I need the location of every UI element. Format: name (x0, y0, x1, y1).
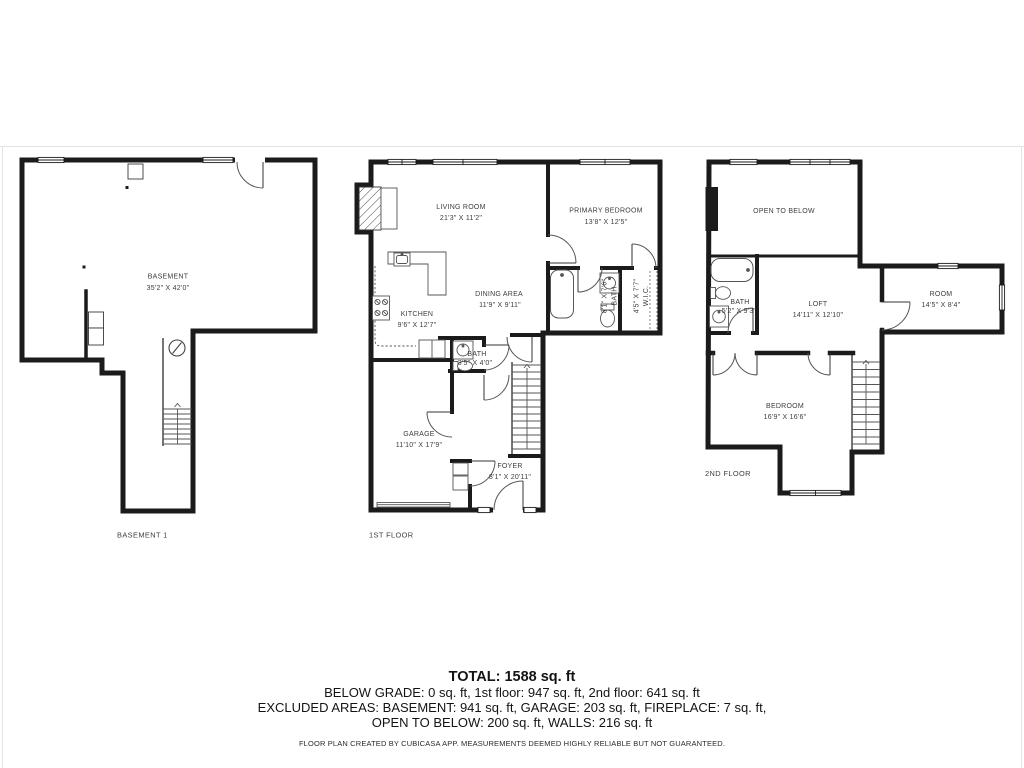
loft-bath-label: BATH (730, 299, 749, 306)
total-area: TOTAL: 1588 sq. ft (0, 669, 1024, 685)
first-floor-plan: LIVING ROOM 21'3" X 11'2" PRIMARY BEDROO… (357, 159, 660, 540)
garage-label: GARAGE (403, 431, 435, 438)
basement-room-label: BASEMENT (148, 274, 189, 281)
basement-room-dims: 35'2" X 42'0" (147, 285, 190, 292)
second-floor-label: 2ND FLOOR (705, 469, 751, 478)
basement-shelves (89, 312, 104, 345)
bedroom-label: BEDROOM (766, 403, 804, 410)
basement-plan: BASEMENT 35'2" X 42'0" BASEMENT 1 (22, 157, 315, 540)
kitchen-sink-icon (394, 253, 410, 266)
foyer-label: FOYER (497, 463, 522, 470)
loft-dims: 14'11" X 12'10" (793, 312, 844, 319)
small-bath-label: BATH (467, 351, 486, 358)
primary-bath-dims: 8'1" X 7'6" (602, 278, 609, 313)
primary-bedroom-dims: 13'8" X 12'5" (585, 219, 628, 226)
second-floor-outline (708, 162, 1002, 493)
excluded-areas-line2: OPEN TO BELOW: 200 sq. ft, WALLS: 216 sq… (0, 715, 1024, 730)
excluded-areas-line: EXCLUDED AREAS: BASEMENT: 941 sq. ft, GA… (0, 700, 1024, 715)
wic-dims: 4'5" X 7'7" (634, 278, 641, 313)
dining-area-label: DINING AREA (475, 291, 523, 298)
floor-plan-sheet: BASEMENT 35'2" X 42'0" BASEMENT 1 (0, 0, 1024, 768)
garage-dims: 11'10" X 17'9" (396, 442, 443, 449)
fireplace-icon (359, 187, 397, 230)
basement-floor-label: BASEMENT 1 (117, 531, 168, 540)
loft-toilet-icon (711, 287, 731, 300)
bedroom-dims: 16'9" X 16'6" (764, 414, 807, 421)
basement-pillar (128, 164, 143, 179)
floor-areas-line: BELOW GRADE: 0 sq. ft, 1st floor: 947 sq… (0, 685, 1024, 700)
living-room-label: LIVING ROOM (436, 204, 485, 211)
loft-bath-dims: 5'2" X 9'3" (722, 308, 757, 315)
small-bath-dims: 3'5" X 4'0" (458, 360, 493, 367)
dining-area-dims: 11'9" X 9'11" (479, 302, 521, 309)
first-floor-label: 1ST FLOOR (369, 531, 414, 540)
chimney (706, 187, 719, 231)
kitchen-dims: 9'6" X 12'7" (398, 322, 437, 329)
primary-bathtub-icon (551, 270, 574, 318)
disclaimer-text: FLOOR PLAN CREATED BY CUBICASA APP. MEAS… (0, 739, 1024, 748)
foyer-dims: 8'1" X 20'11" (489, 474, 532, 481)
open-to-below-label: OPEN TO BELOW (753, 208, 815, 215)
loft-bathtub-icon (711, 259, 753, 282)
kitchen-label: KITCHEN (401, 311, 433, 318)
basement-outline (22, 160, 315, 511)
second-floor-plan: OPEN TO BELOW LOFT 14'11" X 12'10" ROOM … (705, 159, 1006, 497)
primary-bedroom-label: PRIMARY BEDROOM (569, 208, 643, 215)
loft-label: LOFT (809, 301, 828, 308)
room-label: ROOM (930, 291, 953, 298)
room-dims: 14'5" X 8'4" (922, 302, 961, 309)
primary-bath-label: BATH (612, 286, 619, 305)
utility-boxes (453, 463, 468, 490)
wic-label: W.I.C. (643, 286, 650, 307)
stove-icon (373, 296, 390, 320)
floor-plans-canvas: BASEMENT 35'2" X 42'0" BASEMENT 1 (0, 0, 1024, 768)
area-summary: TOTAL: 1588 sq. ft BELOW GRADE: 0 sq. ft… (0, 669, 1024, 748)
living-room-dims: 21'3" X 11'2" (440, 215, 483, 222)
garage-door (377, 503, 450, 508)
